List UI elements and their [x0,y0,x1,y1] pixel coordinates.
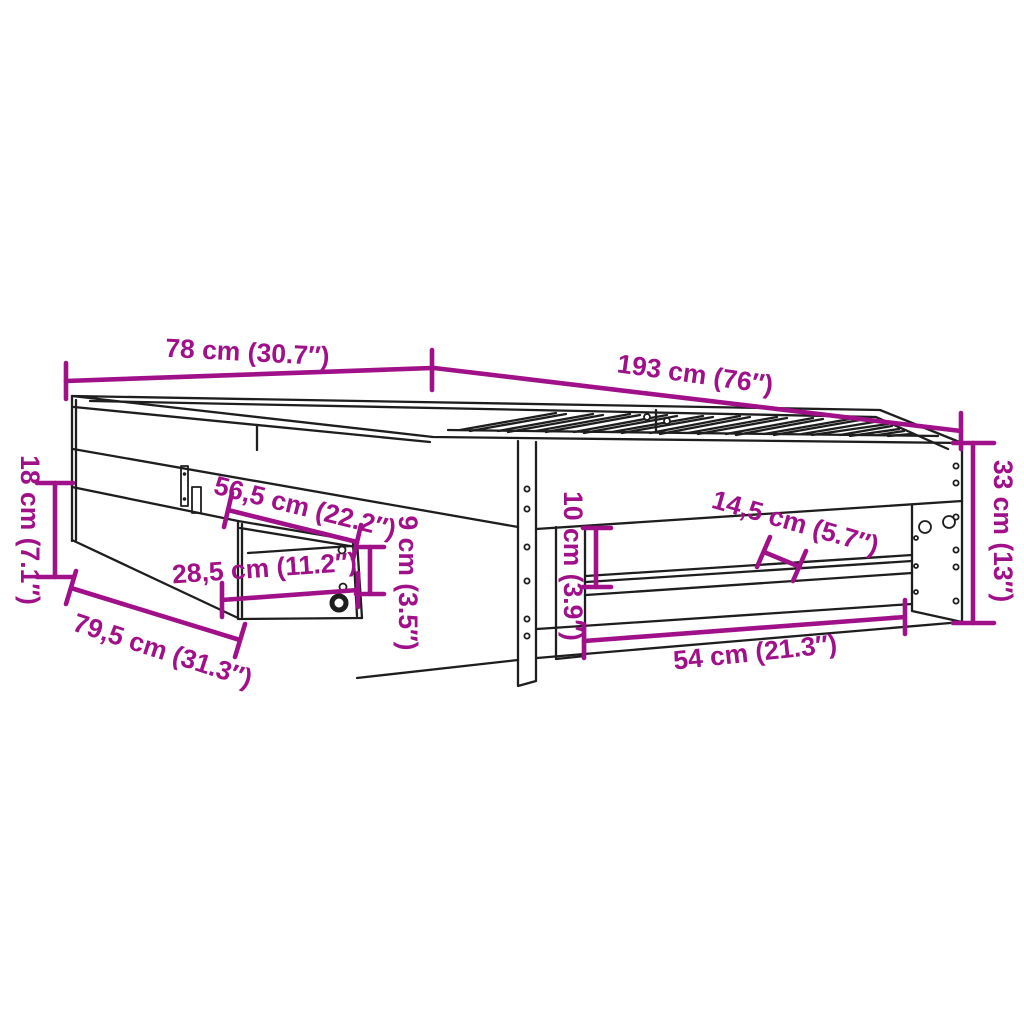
right-leg-panel [912,443,962,622]
dim-bottom-opening-width-label: 54 cm (21.3″) [672,629,839,676]
bed-frame-dimension-diagram: 78 cm (30.7″) 193 cm (76″) 33 cm (13″) 1… [0,0,1024,1024]
dim-drawer-height: 18 cm (7.1″) [15,455,73,605]
head-panel-top-face [74,407,430,442]
dim-side-rail-height: 10 cm (3.9″) [558,491,611,641]
dim-line [66,368,432,381]
dim-frame-height-label: 33 cm (13″) [988,460,1018,602]
dim-bed-width: 78 cm (30.7″) [66,333,432,399]
dim-bottom-opening-width: 54 cm (21.3″) [584,600,905,676]
dim-drawer-depth: 79,5 cm (31.3″) [66,571,256,694]
dim-bed-width-label: 78 cm (30.7″) [165,333,331,372]
under-bed-floor-edge [357,660,518,678]
diagram-canvas: 78 cm (30.7″) 193 cm (76″) 33 cm (13″) 1… [0,0,1024,1024]
dim-drawer-front-width-label: 28,5 cm (11.2″) [171,547,358,590]
front-left-leg [518,441,536,686]
dim-shelf-depth-label: 14,5 cm (5.7″) [709,484,882,560]
caster-wheel [332,596,346,610]
dim-side-rail-height-label: 10 cm (3.9″) [558,491,588,641]
dim-drawer-front-width: 28,5 cm (11.2″) [171,547,358,617]
drawer-front-bottom-edge [238,618,362,619]
middle-shelf [586,555,912,595]
large-bolt-hole [919,521,931,533]
dim-drawer-inner-height-label: 9 cm (3.5″) [393,516,423,651]
dim-drawer-depth-label: 79,5 cm (31.3″) [69,607,256,693]
head-panel-left-edge [72,396,76,541]
dim-drawer-height-label: 18 cm (7.1″) [15,455,45,605]
dimension-annotations: 78 cm (30.7″) 193 cm (76″) 33 cm (13″) 1… [15,333,1018,694]
